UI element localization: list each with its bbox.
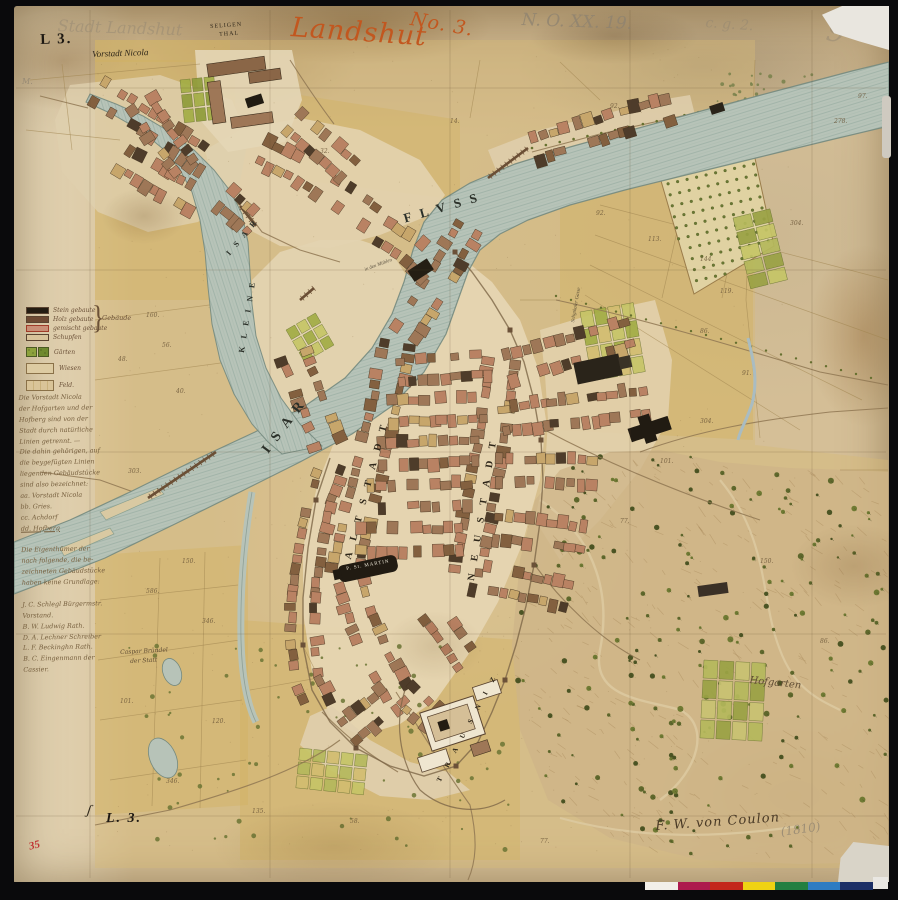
stamp-L3-bottom: L. 3. (106, 812, 142, 826)
parcel-number: 150. (182, 558, 195, 565)
parcel-number: 150. (760, 558, 773, 565)
parcel-number: 303. (128, 468, 141, 475)
parcel-number: 119. (720, 288, 733, 295)
parcel-number: 32. (320, 148, 330, 155)
calibration-strip-tab (873, 877, 888, 889)
parcel-number: 101. (660, 458, 673, 465)
parcel-number: 113. (648, 236, 661, 243)
legend-swatch-field (26, 380, 54, 391)
legend-swatch-stone (26, 307, 49, 314)
legend-brace-label: Gebäude (102, 314, 131, 322)
colorbar-swatch (743, 882, 776, 890)
parcel-number: 92. (596, 210, 606, 217)
scanned-map-sheet: Stein gebaute Holz gebaute gemischt geba… (0, 0, 898, 900)
colorbar-swatch (645, 882, 678, 890)
parcel-number: 77. (540, 838, 550, 845)
parcel-number: 144. (700, 256, 713, 263)
parcel-number: 14. (450, 118, 460, 125)
legend-label: Schupfen (53, 334, 82, 341)
colorbar-swatch (775, 882, 808, 890)
scanner-background (0, 0, 14, 900)
pencil-archive-no: N. O. XX. 19. (521, 12, 632, 33)
parcel-number: 346. (202, 618, 215, 625)
note-line: Cassier. (23, 665, 105, 677)
legend-swatch-wood (26, 316, 49, 323)
parcel-number: 304. (700, 418, 713, 425)
color-calibration-strip (645, 882, 873, 890)
pencil-stadt-landshut: Stadt Landshut (57, 18, 182, 38)
parcel-number: 91. (742, 370, 752, 377)
parcel-number: 58. (350, 818, 360, 825)
parcel-number: 97. (858, 93, 868, 100)
parcel-number: 77. (620, 518, 630, 525)
parcel-number: 278. (834, 118, 847, 125)
parcel-number: 40. (176, 388, 186, 395)
legend-swatch-shed (26, 334, 49, 341)
legend-swatch-garden (38, 347, 49, 357)
parcel-number: 135. (252, 808, 265, 815)
scanner-background (0, 0, 898, 6)
legend-label: Holz gebaute (53, 316, 93, 323)
parcel-number: 86. (700, 328, 710, 335)
parcel-number: 160. (146, 312, 159, 319)
legend-feld-row: Feld. (26, 380, 136, 391)
legend-label: Gärten (54, 349, 75, 356)
legend-swatch-garden (26, 347, 37, 357)
colorbar-swatch (808, 882, 841, 890)
parcel-number: 346. (166, 778, 179, 785)
colorbar-swatch (840, 882, 873, 890)
parcel-number: 56. (162, 342, 172, 349)
parcel-number: 92. (610, 103, 620, 110)
parcel-number: 48. (118, 356, 128, 363)
pencil-scribble: c. g. 2. (705, 16, 754, 33)
legend-label: Stein gebaute (53, 307, 95, 314)
map-legend: Stein gebaute Holz gebaute gemischt geba… (26, 306, 136, 391)
legend-swatch-meadow (26, 363, 54, 374)
handwritten-note: Die Vorstadt Nicolader Hofgarten und der… (19, 392, 106, 677)
legend-row: Stein gebaute (26, 306, 136, 314)
parcel-number: 586. (146, 588, 159, 595)
pencil-m: M. (22, 78, 33, 86)
legend-label: Wiesen (59, 365, 81, 372)
parcel-number: 304. (790, 220, 803, 227)
colorbar-swatch (710, 882, 743, 890)
parcel-number: 101. (120, 698, 133, 705)
parcel-number: 86. (820, 638, 830, 645)
legend-row: gemischt gebaute (26, 324, 136, 332)
parcel-number: 120. (212, 718, 225, 725)
colorbar-swatch (678, 882, 711, 890)
legend-wiesen-row: Wiesen (26, 363, 136, 374)
legend-label: Feld. (59, 382, 74, 389)
torn-edge-right (882, 96, 891, 158)
legend-row: Schupfen (26, 333, 136, 341)
legend-swatch-mixed (26, 325, 49, 332)
